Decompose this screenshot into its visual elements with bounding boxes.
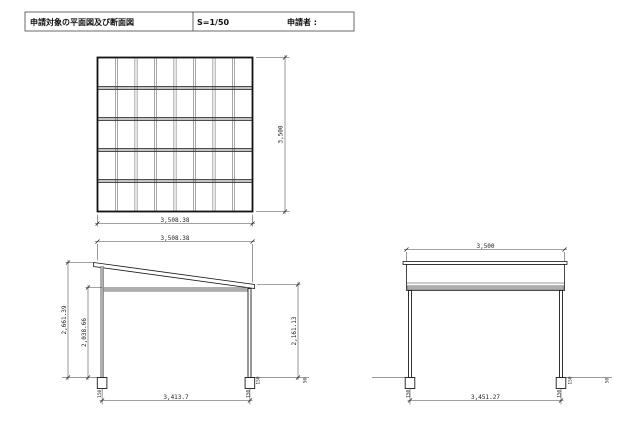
drawing-sheet: 申請対象の平面図及び断面図 S=1/50 申請者 : <box>0 0 640 448</box>
front-right-footing-value: 150 <box>557 389 563 397</box>
front-left-footing-value: 150 <box>406 389 412 397</box>
plan-width-dimension: 3,508.38 <box>95 215 255 227</box>
front-top-width-value: 3,500 <box>476 243 494 250</box>
front-ground-offset-value: 50 <box>605 378 611 384</box>
left-foundation <box>405 378 415 389</box>
front-section-view: 3,500 3,451.27 150 150 150 50 <box>372 243 612 405</box>
right-foundation <box>245 378 255 389</box>
front-span-value: 3,451.27 <box>471 394 500 401</box>
side-span-value: 3,413.7 <box>163 394 189 401</box>
title-block: 申請対象の平面図及び断面図 S=1/50 申請者 : <box>25 12 354 31</box>
plan-height-dimension: 3,500 <box>256 55 290 214</box>
roof-top-edge <box>403 262 567 265</box>
side-overall-height-value: 2,661.39 <box>61 305 68 334</box>
side-low-height-dimension: 2,161.13 <box>257 282 301 380</box>
side-top-width-value: 3,508.38 <box>161 235 190 242</box>
side-ground-offset-value: 50 <box>303 378 309 384</box>
left-post <box>101 267 104 378</box>
side-eave-height-dimension: 2,038.66 <box>81 285 102 380</box>
side-overall-height-dimension: 2,661.39 <box>61 260 95 380</box>
side-low-height-value: 2,161.13 <box>291 316 298 345</box>
front-beam <box>407 286 564 290</box>
left-foundation <box>97 378 107 389</box>
front-ground-step-value: 150 <box>568 376 574 384</box>
side-eave-height-value: 2,038.66 <box>81 318 88 347</box>
right-post <box>248 289 251 378</box>
roof-plan-outline <box>98 58 253 212</box>
side-right-footing-value: 150 <box>246 389 252 397</box>
side-left-footing-value: 150 <box>97 389 103 397</box>
right-foundation <box>556 378 566 389</box>
applicant-label: 申請者 : <box>287 17 317 27</box>
scale-label: S=1/50 <box>197 18 230 27</box>
left-post <box>409 291 412 378</box>
plan-width-value: 3,508.38 <box>161 217 190 224</box>
front-top-dimension: 3,500 <box>404 243 567 261</box>
drawing-title: 申請対象の平面図及び断面図 <box>30 17 134 27</box>
side-span-dimension: 3,413.7 <box>100 389 253 405</box>
right-post <box>560 291 563 378</box>
plan-view: 3,500 3,508.38 <box>95 55 290 227</box>
eave-beam <box>103 288 248 292</box>
side-section-view: 3,508.38 2,661.39 2,038.66 <box>61 235 309 405</box>
plan-height-value: 3,500 <box>278 125 285 143</box>
sloped-roof-panel <box>94 263 255 289</box>
drawing-canvas: 申請対象の平面図及び断面図 S=1/50 申請者 : <box>0 0 640 448</box>
side-ground-step-value: 150 <box>256 376 262 384</box>
front-span-dimension: 3,451.27 <box>408 389 564 405</box>
